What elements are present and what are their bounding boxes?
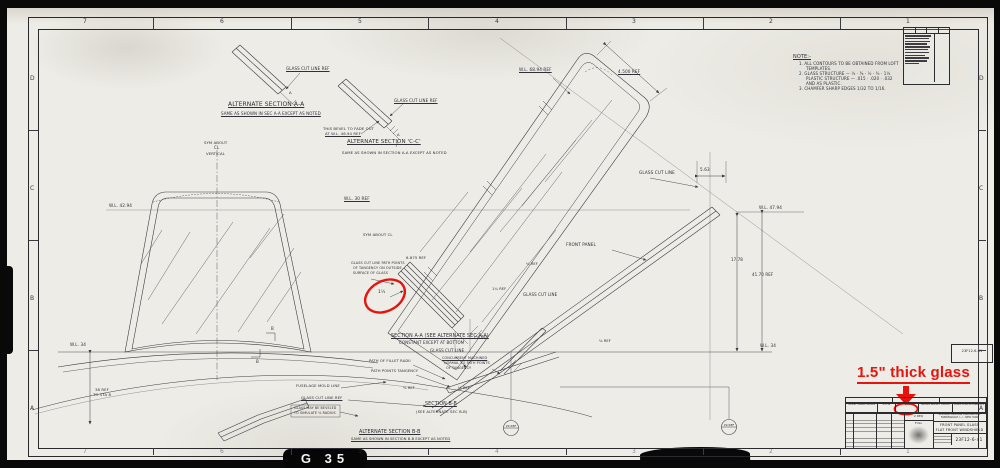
label-section-aa: SECTION A-A (SEE ALTERNATE SEC A-A) xyxy=(391,334,489,339)
zone-left-C: C xyxy=(30,185,34,192)
label-dim-114: 1¼ REF xyxy=(492,288,506,292)
label-bevel-box-2: TO SIMULATE ⅛ RADIUS xyxy=(294,412,336,415)
zone-left-B: B xyxy=(30,295,34,302)
label-path-tangency: PATH POINTS TANGENCY xyxy=(371,370,418,374)
company-name: REPUBLIC AVIATION CORPORATION FARMINGDAL… xyxy=(933,413,986,422)
red-circle-thickness xyxy=(359,273,410,319)
label-dim-eighth-5: ⅛ REF xyxy=(599,340,611,344)
revision-text-line xyxy=(905,57,929,59)
label-wl-4294: W.L. 42.94 xyxy=(109,204,132,208)
label-wl-34-left: W.L. 34 xyxy=(70,343,86,347)
zone-tick xyxy=(428,18,429,29)
zone-top-2: 2 xyxy=(769,18,773,25)
zone-top-5: 5 xyxy=(358,18,362,25)
label-fuselage-mold: FUSELAGE MOLD LINE xyxy=(296,384,340,388)
zone-tick xyxy=(978,240,986,241)
label-glass-cut-note-3: SURFACE OF GLASS xyxy=(353,272,388,276)
zone-tick xyxy=(566,448,567,455)
balloon-1-label: 29 REF xyxy=(506,424,517,428)
label-glass-cut-line-3: GLASS CUT LINE xyxy=(523,293,557,297)
zone-tick xyxy=(29,130,38,131)
zone-bottom-7: 7 xyxy=(83,448,87,455)
label-alt-section-cc-sub: SAME AS SHOWN IN SECTION A-A EXCEPT AS N… xyxy=(342,151,447,155)
revision-text-line xyxy=(905,41,930,43)
label-cut-a-1: A xyxy=(289,91,292,95)
revision-header xyxy=(904,28,949,34)
label-dim-eighth-1: ⅛ REF xyxy=(526,263,538,267)
zone-tick xyxy=(703,18,704,29)
approval-stamp xyxy=(908,426,929,444)
label-concurrent-3: OF TANGENCY xyxy=(446,367,471,371)
zone-top-7: 7 xyxy=(83,18,87,25)
zone-tick xyxy=(291,18,292,29)
quantity: 2 REQ xyxy=(904,414,933,418)
zone-top-1: 1 xyxy=(906,18,910,25)
revision-text xyxy=(905,35,933,66)
note-line-3: 3. CHAMFER SHARP EDGES 1/32 TO 1/16. xyxy=(799,87,886,91)
zone-tick xyxy=(153,18,154,29)
label-cut-b-2: B xyxy=(256,360,259,364)
revision-text-line xyxy=(905,60,927,62)
revision-text-line xyxy=(905,52,929,54)
label-wl-30: W.L. 30 REF xyxy=(344,197,370,201)
zone-right-A: A xyxy=(979,405,983,412)
revision-text-line xyxy=(905,63,919,65)
label-dim-thickness: 1½ xyxy=(378,291,385,296)
zone-bottom-4: 4 xyxy=(495,448,499,455)
label-wl-34-right: W.L. 34 xyxy=(760,344,776,348)
label-sym-about-1c: VERTICAL xyxy=(206,152,225,156)
zone-bottom-1: 1 xyxy=(906,448,910,455)
revision-text-line xyxy=(905,43,927,45)
zone-tick xyxy=(978,350,986,351)
zone-left-D: D xyxy=(30,75,35,82)
label-dim-563: 5.63 xyxy=(700,168,710,172)
zone-left-A: A xyxy=(30,405,34,412)
label-dim-4500: 4.500 REF xyxy=(618,70,640,74)
label-cut-b-1: B xyxy=(271,327,274,331)
label-alt-section-aa-sub: SAME AS SHOWN IN SEC A-A EXCEPT AS NOTED xyxy=(221,112,321,116)
zone-right-B: B xyxy=(979,295,983,302)
datum-balloons: 29 REF 29 REF xyxy=(504,420,737,436)
label-dim-eighth-2: ⅛ REF xyxy=(476,336,488,340)
label-alt-section-cc: ALTERNATE SECTION 'C-C' xyxy=(347,140,421,146)
zone-tick xyxy=(840,448,841,455)
label-dim-eighth-3: ⅛ REF xyxy=(403,387,415,391)
label-sym-about-1b: CL xyxy=(214,146,219,150)
label-alt-section-aa: ALTERNATE SECTION A-A xyxy=(228,102,304,108)
zone-tick xyxy=(153,448,154,455)
label-glass-cut-ref-2: GLASS CUT LINE REF xyxy=(394,99,438,103)
label-dim-4170: 41.70 REF xyxy=(752,273,773,277)
label-alt-section-bb: ALTERNATE SECTION B-B xyxy=(359,430,420,435)
label-bevel-box-1: GLASS MAY BE BEVELED xyxy=(294,407,336,410)
main-linework xyxy=(32,45,804,441)
revision-text-line xyxy=(905,38,929,40)
zone-tick xyxy=(428,448,429,455)
zone-bottom-5: 5 xyxy=(358,448,362,455)
zone-bottom-6: 6 xyxy=(220,448,224,455)
label-path-fillet: PATH OF FILLET RADII xyxy=(369,360,411,364)
zone-bottom-2: 2 xyxy=(769,448,773,455)
zone-tick xyxy=(840,18,841,29)
balloon-2-label: 29 REF xyxy=(724,423,735,427)
revision-text-line xyxy=(905,46,930,48)
blueprint-scan: 29 REF 29 REF NOTE:-1. ALL CONTOURS TO B… xyxy=(0,0,1000,468)
zone-tick xyxy=(291,448,292,455)
company-line-2: FARMINGDALE, L. I., NEW YORK xyxy=(941,416,978,419)
label-glass-cut-ref-b: GLASS CUT LINE REF xyxy=(301,396,342,400)
title-block-detail xyxy=(933,434,952,445)
revision-block xyxy=(903,27,950,85)
zone-tick xyxy=(29,240,38,241)
label-sym-about-2: SYM ABOUT CL xyxy=(363,233,393,237)
zone-right-D: D xyxy=(979,75,984,82)
revision-text-line xyxy=(905,49,928,51)
label-wl-6894: W.L. 68.94 REF xyxy=(519,68,552,72)
drawing-number: 23F12-6-41 xyxy=(952,434,986,445)
note-title: NOTE:- xyxy=(793,55,811,60)
label-glass-cut-ref-1: GLASS CUT LINE REF xyxy=(286,67,330,71)
scale: FULL xyxy=(904,420,933,425)
glass-hatching xyxy=(141,100,612,334)
materials-list xyxy=(846,413,905,448)
margin-drawing-number: 23F12-6-41 xyxy=(951,344,993,363)
revision-text-line xyxy=(905,55,925,57)
zone-bottom-3: 3 xyxy=(632,448,636,455)
label-dim-1778: 17.78 xyxy=(731,258,743,262)
zone-top-3: 3 xyxy=(632,18,636,25)
title-block: 2 REQ FULL REPUBLIC AVIATION CORPORATION… xyxy=(845,412,987,449)
title-block-middle: 2 REQ FULL xyxy=(904,413,934,448)
label-bevel-note-2: AT W.L. 46.94 REF xyxy=(325,132,361,136)
label-dim-6875: 6.875 REF xyxy=(406,256,426,260)
zone-top-6: 6 xyxy=(220,18,224,25)
thickness-annotation: 1.5" thick glass xyxy=(857,364,970,384)
label-dim-eighth-4: ⅛ REF xyxy=(458,387,470,391)
zone-right-C: C xyxy=(979,185,983,192)
leader-lines xyxy=(286,73,698,416)
zone-tick xyxy=(29,350,38,351)
label-wl-4794: W.L. 47.94 xyxy=(759,206,782,210)
label-front-panel: FRONT PANEL xyxy=(566,243,596,247)
label-alt-section-bb-sub: SAME AS SHOWN IN SECTION B-B EXCEPT AS N… xyxy=(351,438,450,442)
label-glass-cut-line-5: GLASS CUT LINE xyxy=(430,349,464,353)
title-line-2: FLAT FRONT WINDSHIELD xyxy=(936,428,984,432)
sheet-id-tag: G 35 xyxy=(283,449,367,468)
label-section-bb: SECTION B-B xyxy=(425,402,457,407)
label-cut-a-2: A xyxy=(397,133,400,137)
drawing-title: FRONT PANEL GLASS FLAT FRONT WINDSHIELD xyxy=(933,422,986,435)
zone-tick xyxy=(703,448,704,455)
zone-top-4: 4 xyxy=(495,18,499,25)
label-section-aa-sub: CONSTANT EXCEPT AT BOTTOM xyxy=(399,341,464,345)
zone-tick xyxy=(566,18,567,29)
zone-tick xyxy=(978,130,986,131)
label-section-bb-sub: (SEE ALTERNATE SEC B-B) xyxy=(416,410,467,414)
label-ref-38b: TO STA 8 xyxy=(93,393,111,397)
title-block-right: REPUBLIC AVIATION CORPORATION FARMINGDAL… xyxy=(933,413,986,448)
revision-text-line xyxy=(905,35,931,37)
label-glass-cut-line-4: GLASS CUT LINE xyxy=(639,171,675,175)
